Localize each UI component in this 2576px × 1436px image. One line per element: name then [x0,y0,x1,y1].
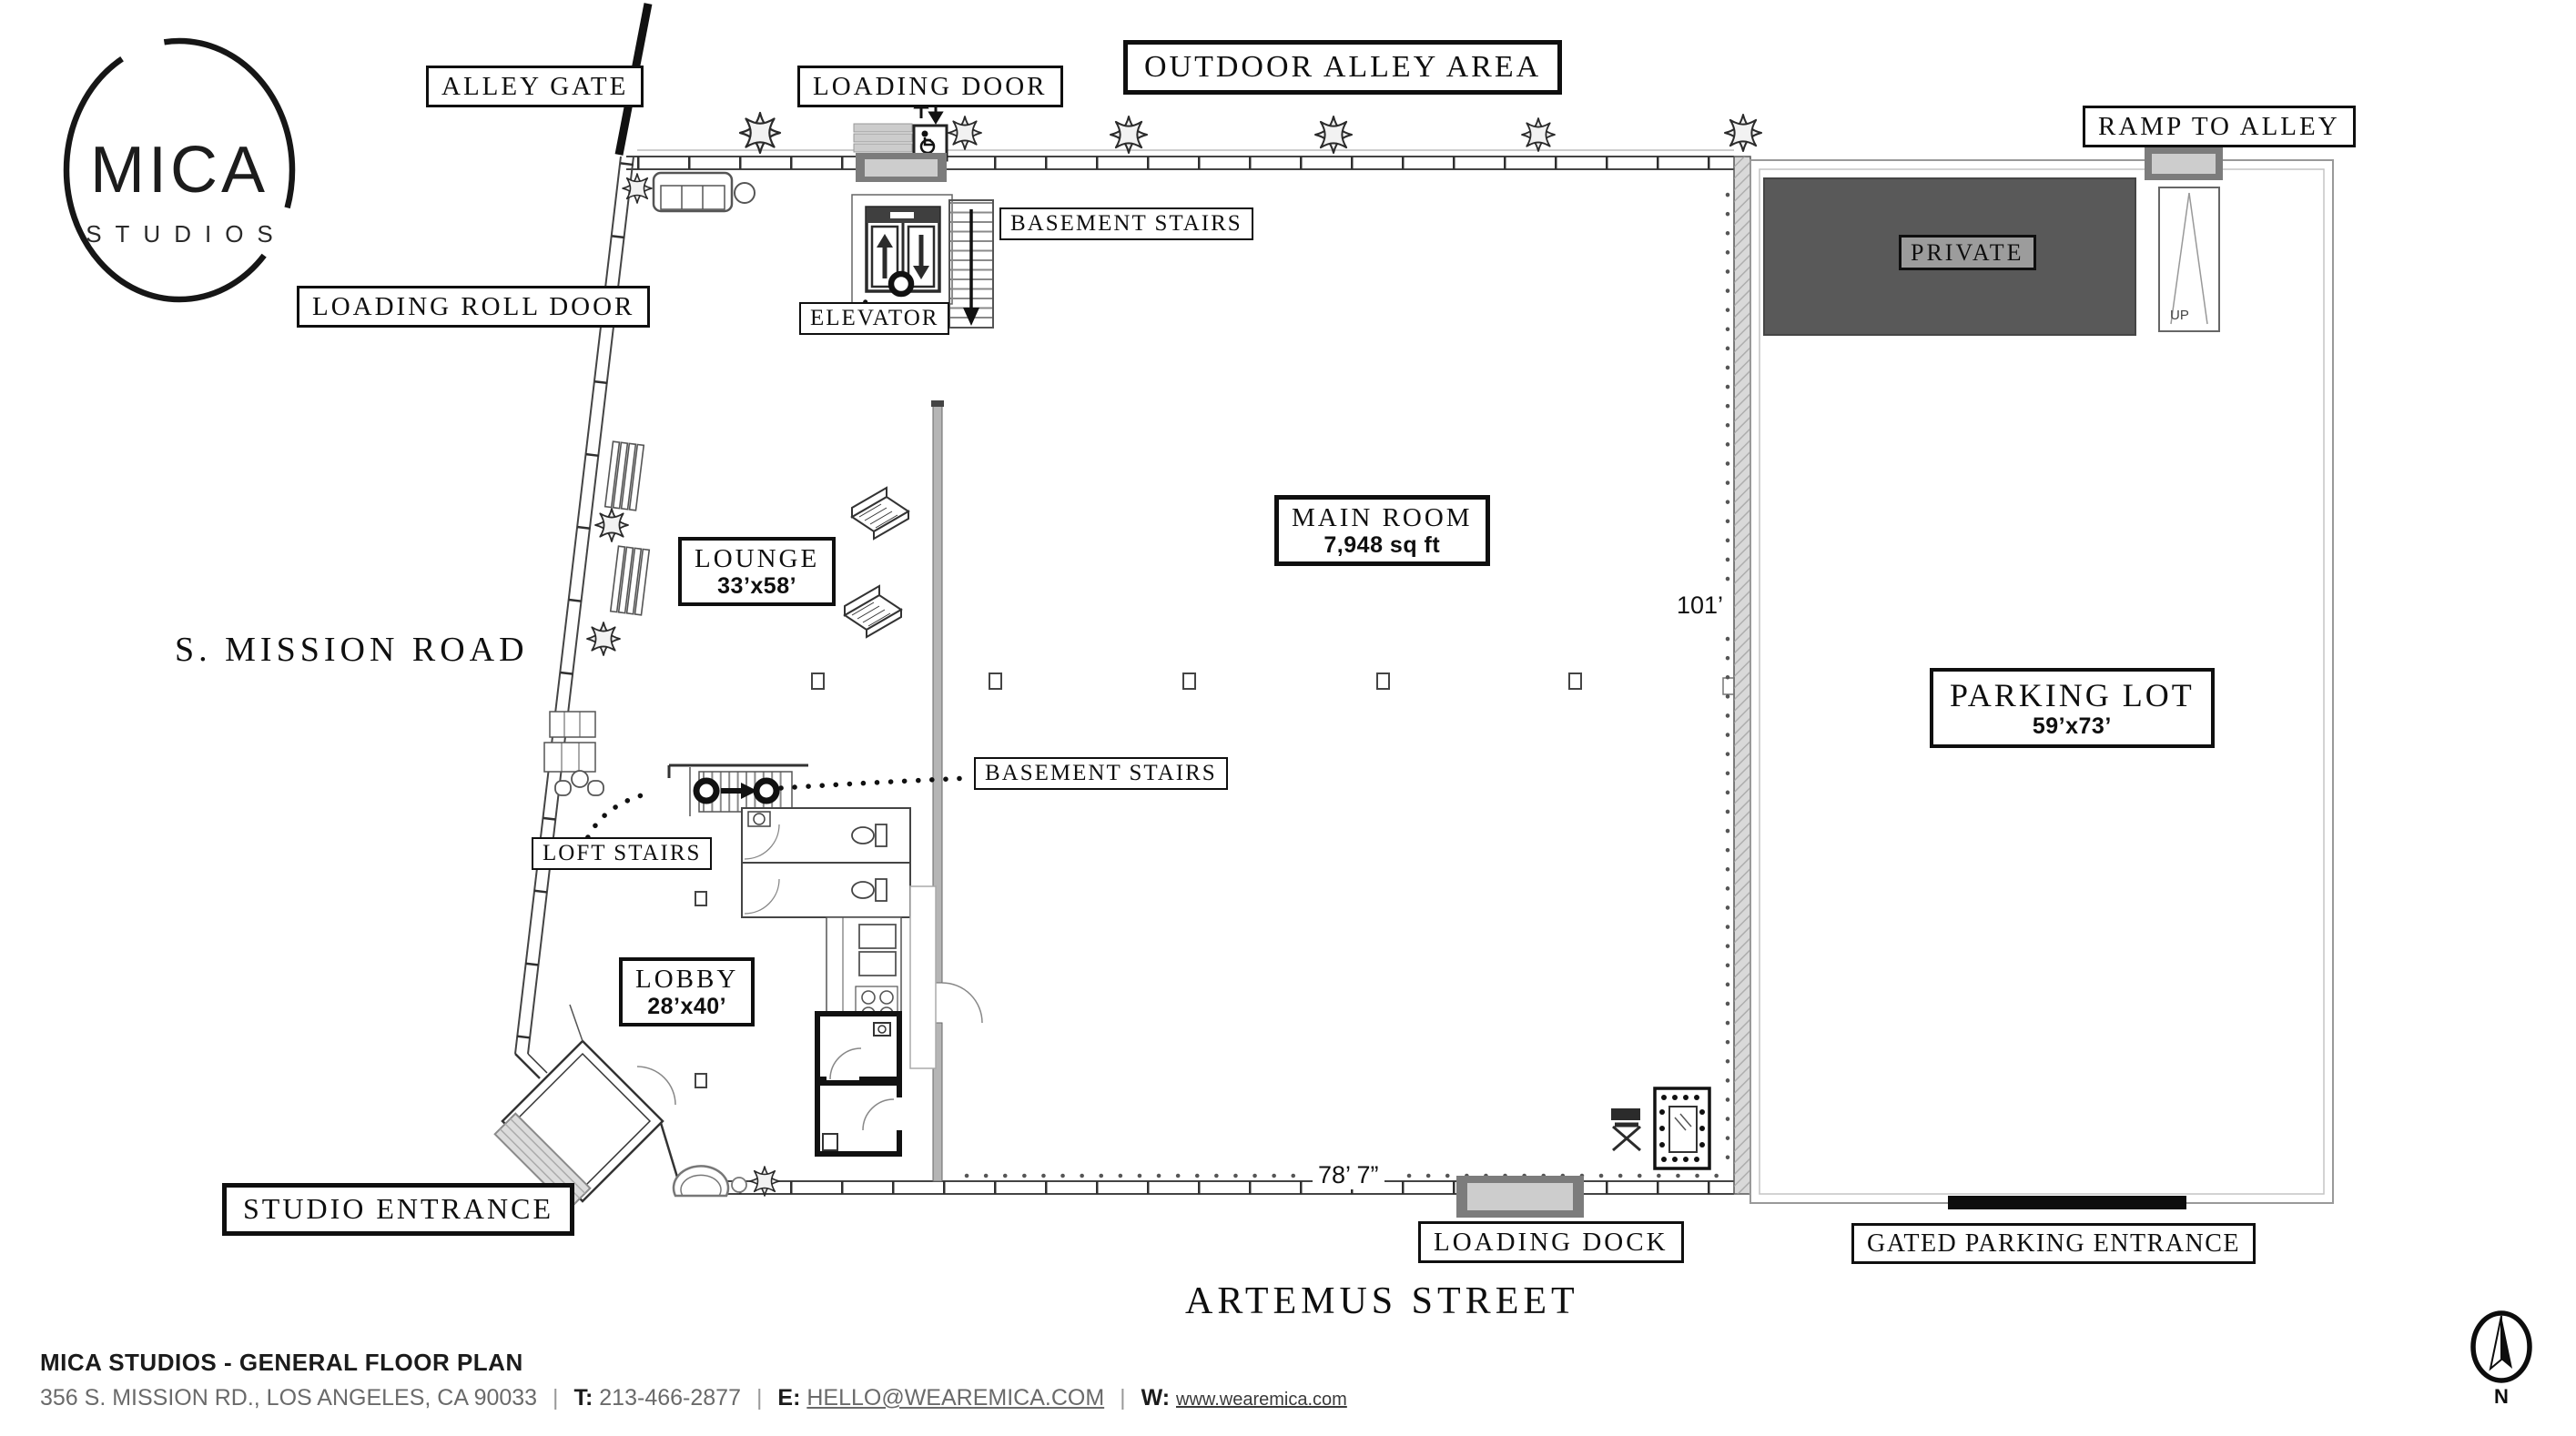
label-studio-entrance: STUDIO ENTRANCE [222,1183,574,1236]
label-loading-door: LOADING DOOR [797,66,1063,107]
label-loading-dock: LOADING DOCK [1418,1221,1684,1263]
plant-icons [581,105,1770,1202]
floor-plan-page: MICA STUDIOS ALLEY GATE LOADING DOOR OUT… [0,0,2576,1436]
divider-wall [931,400,982,1181]
parking-lot-dimensions: 59’x73’ [1950,713,2195,739]
bench [605,441,644,511]
footer-email-label: E: [777,1385,800,1411]
lounge-name: LOUNGE [695,544,819,573]
dimension-depth: 101’ [1671,592,1729,620]
dimension-width: 78’ 7” [1313,1161,1384,1189]
label-parking-lot: PARKING LOT 59’x73’ [1930,668,2215,748]
label-basement-stairs-upper: BASEMENT STAIRS [999,207,1253,240]
bathrooms [742,808,910,917]
street-artemus-street: ARTEMUS STREET [1185,1279,1579,1323]
footer-email-link[interactable]: HELLO@WEAREMICA.COM [806,1385,1104,1411]
parking-lot-name: PARKING LOT [1950,677,2195,713]
compass-north-label: N [2483,1385,2520,1409]
dimension-lines [967,195,1728,1176]
compass-icon [2473,1313,2530,1380]
label-loading-roll-door: LOADING ROLL DOOR [297,286,650,328]
footer-address: 356 S. MISSION RD., LOS ANGELES, CA 9003… [40,1385,537,1411]
chaise [852,488,908,539]
footer-phone: 213-466-2877 [599,1385,741,1411]
lounge-dimensions: 33’x58’ [695,573,819,599]
makeup-mirror-icon [1655,1088,1709,1168]
director-chair-icon [1611,1108,1640,1150]
footer-phone-label: T: [574,1385,593,1411]
footer-website-link[interactable]: www.wearemica.com [1176,1390,1347,1410]
label-lobby: LOBBY 28’x40’ [619,957,755,1026]
mica-studios-logo: MICA STUDIOS [47,31,311,309]
label-ramp-to-alley: RAMP TO ALLEY [2083,106,2356,147]
footer: MICA STUDIOS - GENERAL FLOOR PLAN 356 S.… [40,1349,1347,1411]
footer-web-label: W: [1141,1385,1170,1411]
bench [611,546,650,615]
label-alley-gate: ALLEY GATE [426,66,644,107]
logo-subtitle: STUDIOS [47,220,311,248]
lobby-dimensions: 28’x40’ [635,994,738,1019]
label-elevator: ELEVATOR [799,302,949,335]
basement-stairs-upper-icon [949,200,993,328]
restroom-rooms [817,1014,903,1154]
chaise [845,586,901,637]
label-loft-stairs: LOFT STAIRS [532,837,712,870]
footer-title: MICA STUDIOS - GENERAL FLOOR PLAN [40,1349,1347,1377]
label-main-room: MAIN ROOM 7,948 sq ft [1274,495,1490,566]
break-area [544,712,603,795]
label-lounge: LOUNGE 33’x58’ [678,537,836,606]
ramp [2159,187,2219,331]
sofa [654,173,732,211]
stool [735,183,755,203]
label-basement-stairs-lower: BASEMENT STAIRS [974,757,1228,790]
parking-gate [1948,1196,2186,1209]
main-room-name: MAIN ROOM [1292,503,1473,532]
street-s-mission-road: S. MISSION ROAD [175,630,529,670]
footer-contact-line: 356 S. MISSION RD., LOS ANGELES, CA 9003… [40,1385,1347,1411]
lobby-seating [674,1166,746,1196]
main-room-dimensions: 7,948 sq ft [1292,532,1473,558]
label-private: PRIVATE [1899,235,2036,270]
ramp-up-label: UP [2170,308,2189,323]
logo-title: MICA [47,133,311,207]
label-gated-parking-entrance: GATED PARKING ENTRANCE [1851,1223,2256,1264]
lobby-name: LOBBY [635,965,738,994]
label-outdoor-alley-area: OUTDOOR ALLEY AREA [1123,40,1562,95]
entrance-vestibule [495,1005,679,1208]
